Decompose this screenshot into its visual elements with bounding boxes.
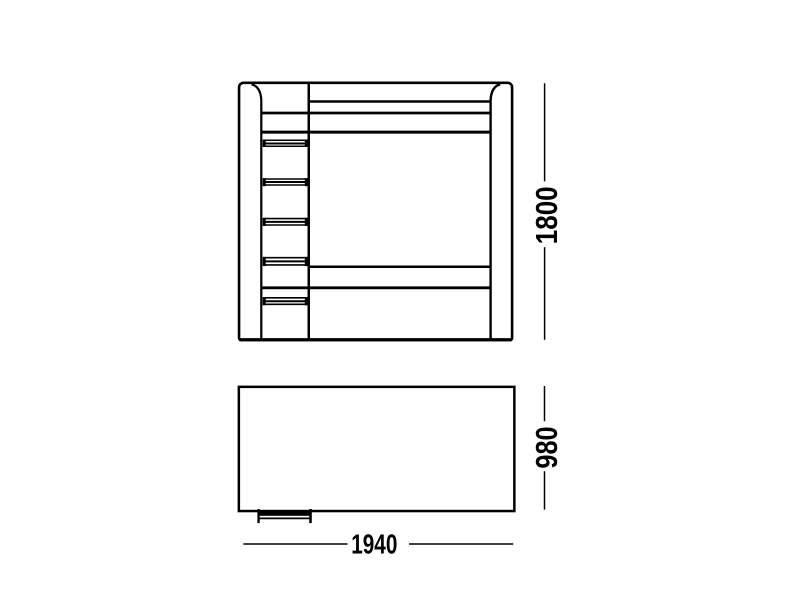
svg-text:1940: 1940 [351,530,397,561]
svg-text:1800: 1800 [530,186,565,244]
svg-text:980: 980 [528,426,563,468]
